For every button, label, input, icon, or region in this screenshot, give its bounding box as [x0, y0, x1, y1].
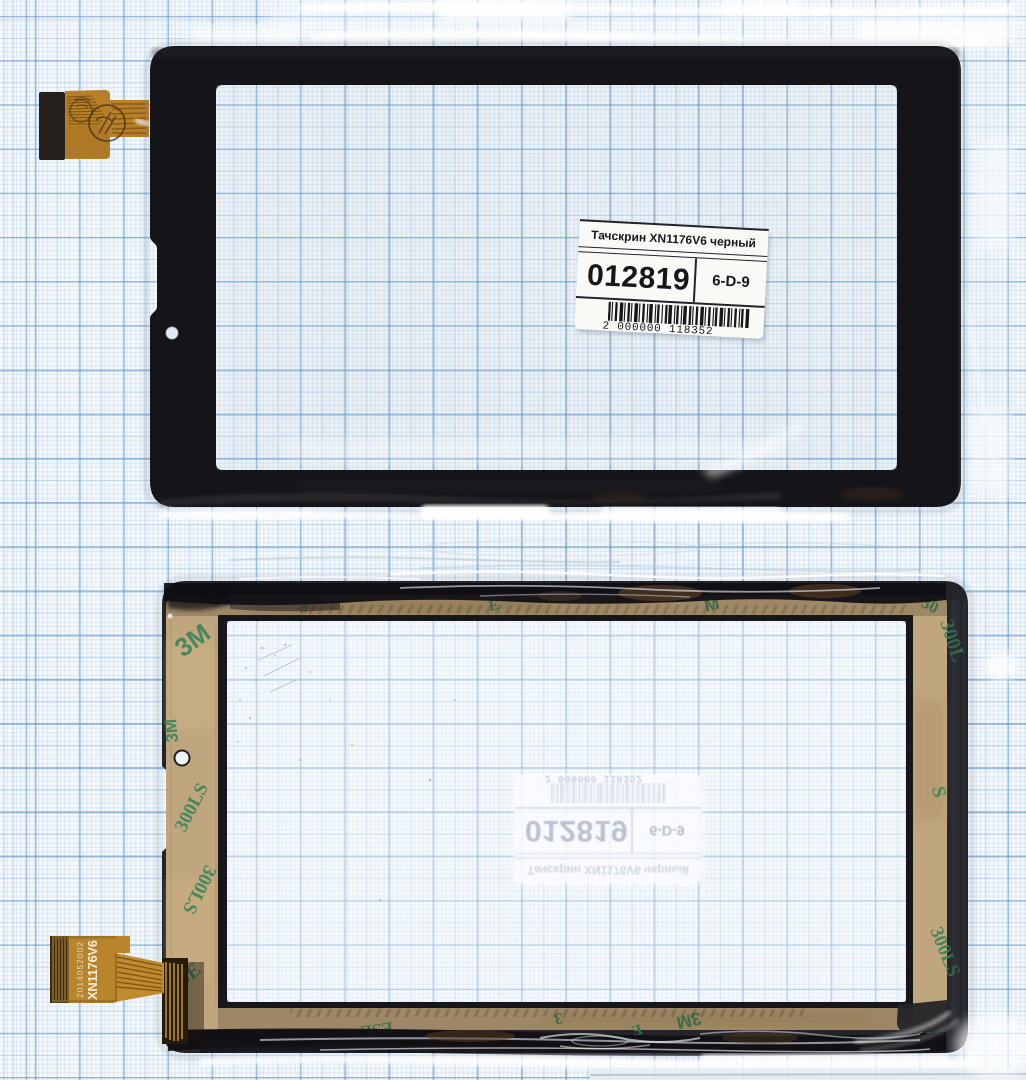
- svg-text:XN1176V6: XN1176V6: [85, 940, 100, 1000]
- svg-text:3M: 3M: [161, 718, 182, 743]
- svg-text:2014052002: 2014052002: [75, 942, 85, 998]
